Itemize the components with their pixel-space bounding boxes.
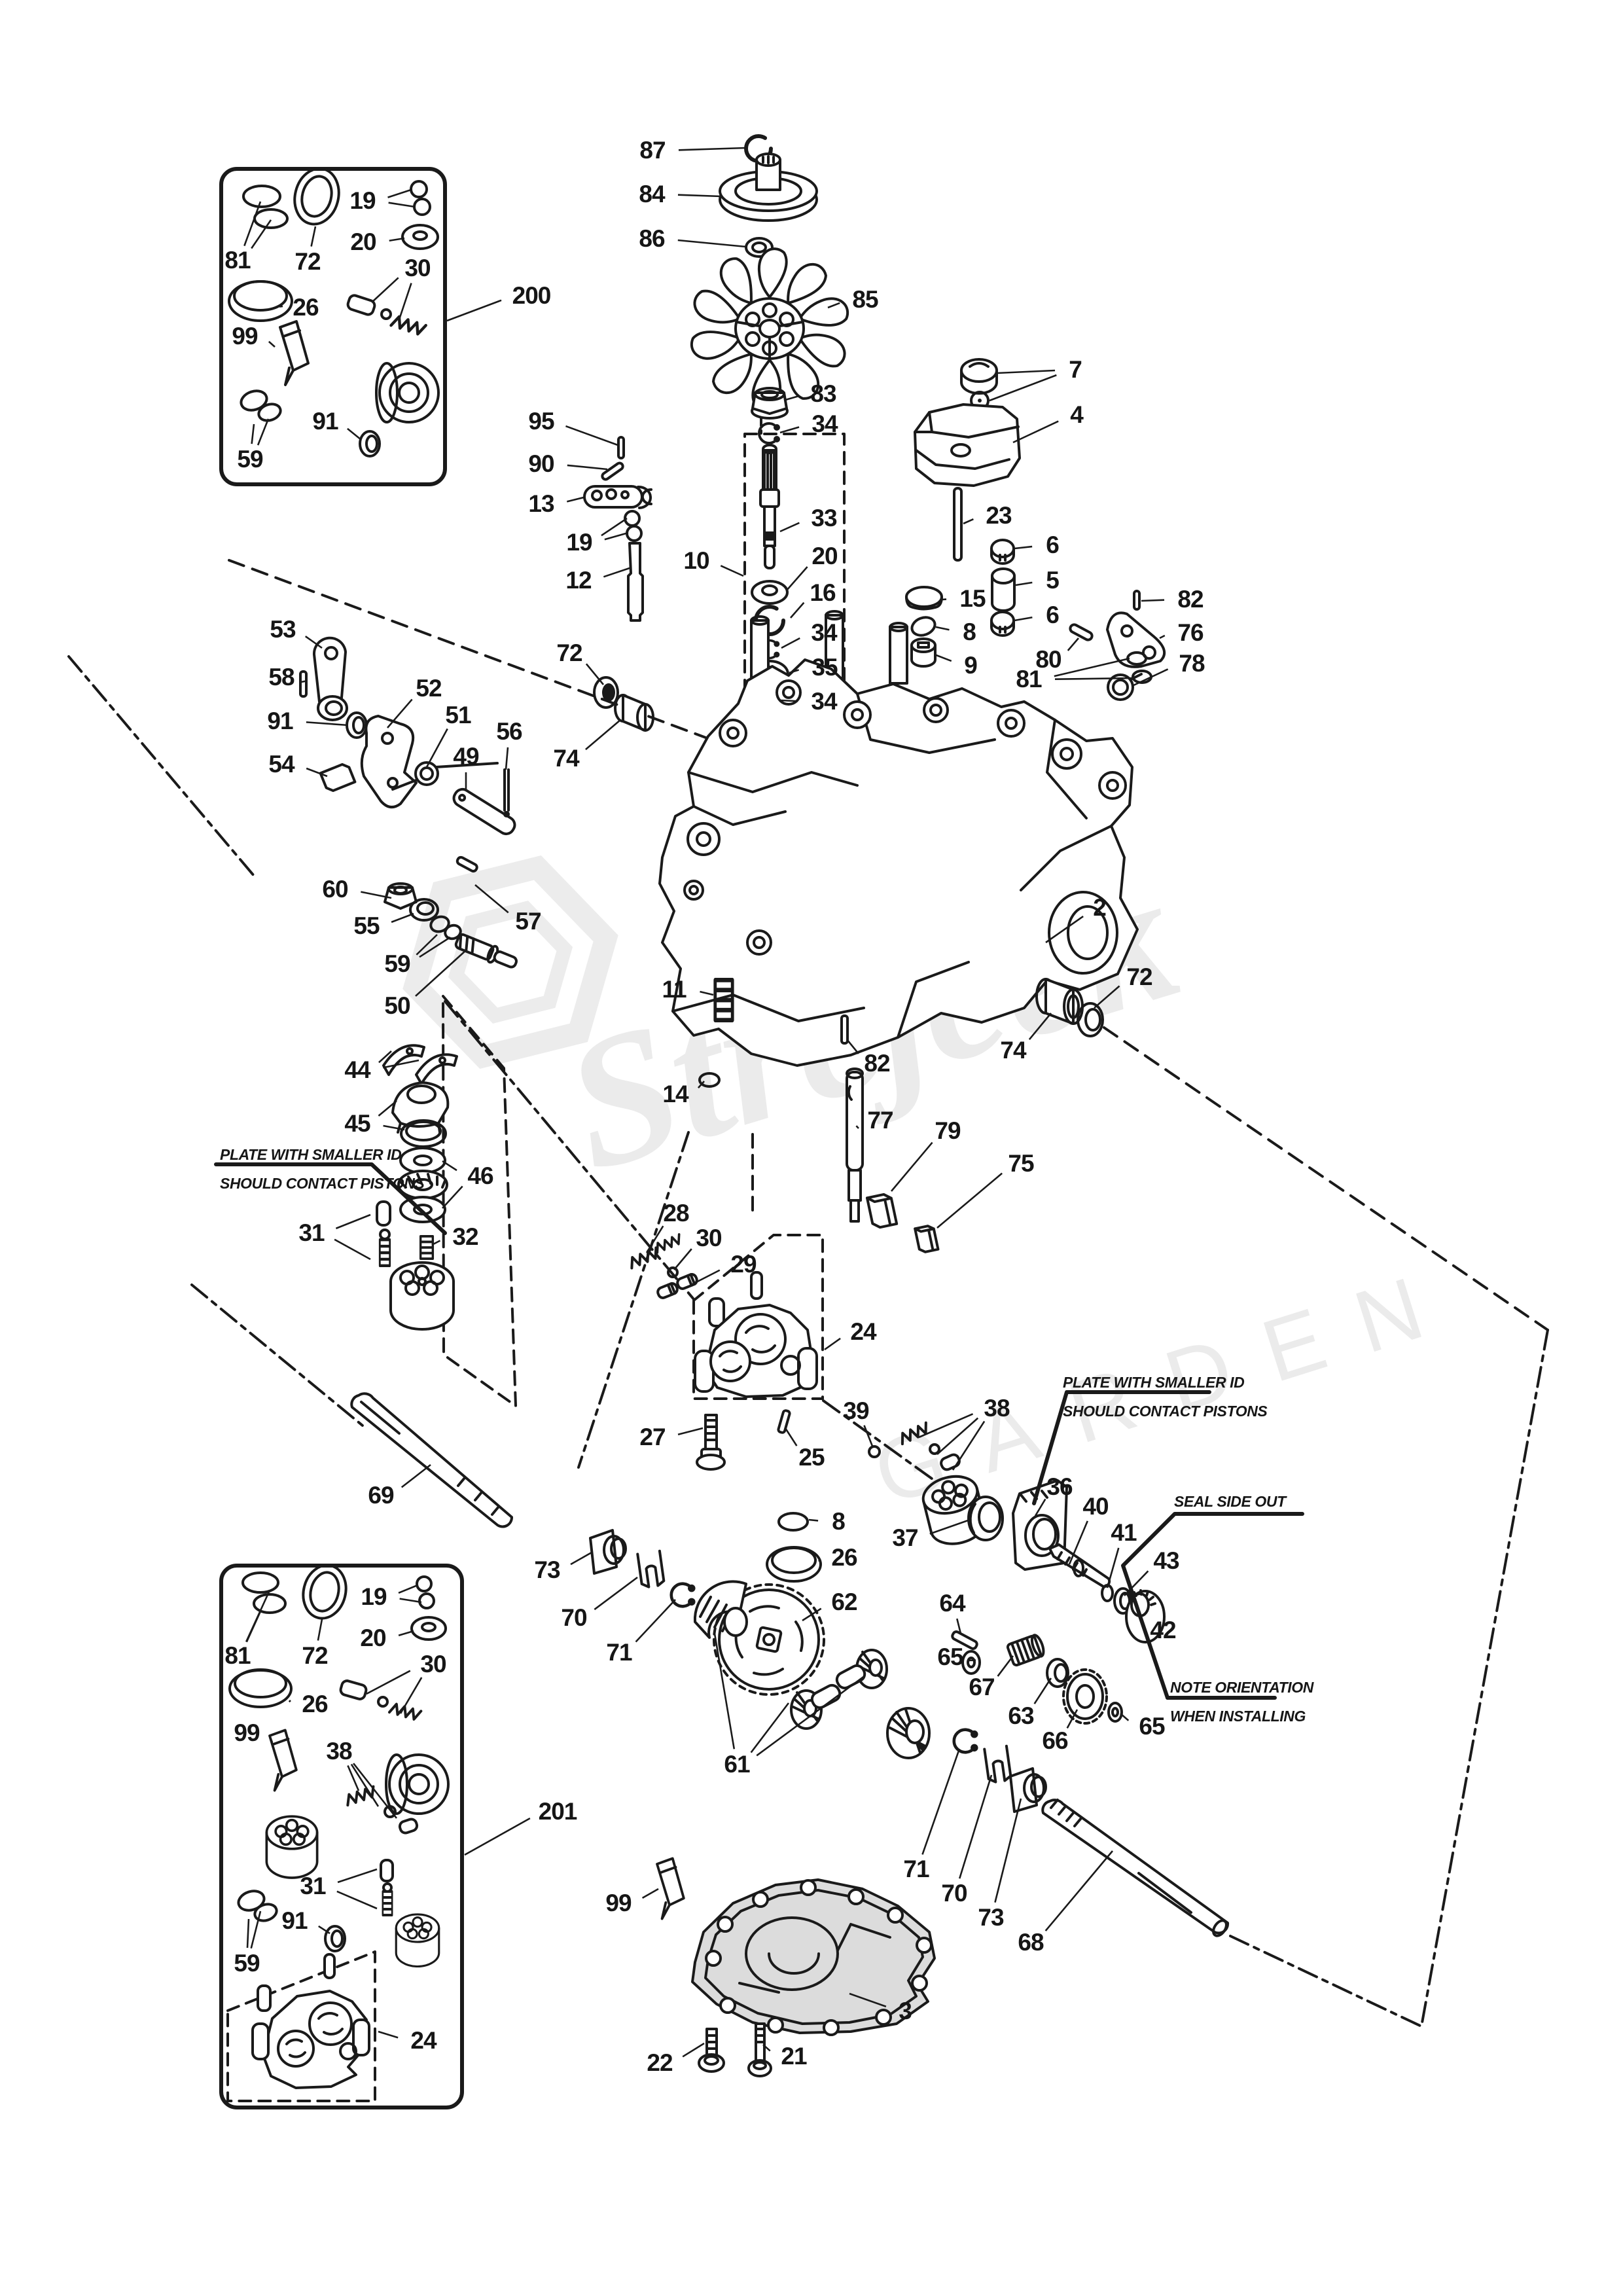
part-label-59: 59 <box>384 950 410 978</box>
part-label-83: 83 <box>810 380 836 408</box>
differential-group <box>351 1393 1229 1938</box>
part-label-20: 20 <box>360 1624 385 1652</box>
kit-center-section-icon <box>253 1954 369 2088</box>
part-label-73: 73 <box>978 1904 1003 1931</box>
part-label-19: 19 <box>349 187 375 215</box>
clamp-6-upper-icon <box>991 540 1014 564</box>
shaft-33-icon <box>760 445 779 568</box>
magnet-75-icon <box>915 1225 938 1253</box>
part-label-4: 4 <box>1070 401 1083 429</box>
pin-25-icon <box>778 1410 791 1433</box>
part-label-36: 36 <box>1046 1473 1072 1501</box>
part-label-68: 68 <box>1018 1929 1043 1956</box>
flange-73-icon <box>590 1530 626 1573</box>
seal-note: SEAL SIDE OUT <box>1174 1487 1286 1516</box>
part-label-21: 21 <box>781 2043 806 2070</box>
part-label-27: 27 <box>639 1424 665 1451</box>
part-label-62: 62 <box>831 1588 857 1616</box>
nut-83-icon <box>752 388 787 418</box>
bracket-52-icon <box>362 716 416 807</box>
exploded-parts-diagram: Strejcek GARDEN <box>0 0 1623 2296</box>
part-label-75: 75 <box>1008 1150 1033 1177</box>
part-label-55: 55 <box>353 912 379 940</box>
part-label-43: 43 <box>1153 1547 1179 1575</box>
part-label-19: 19 <box>361 1583 386 1611</box>
gear-66-icon <box>1063 1670 1107 1723</box>
part-label-14: 14 <box>662 1081 688 1108</box>
part-label-99: 99 <box>234 1719 259 1747</box>
spring-32-icon <box>421 1236 433 1259</box>
block-54-icon <box>321 762 355 793</box>
center-section-24-icon <box>628 1234 817 1397</box>
part-label-11: 11 <box>662 976 686 1003</box>
pin-56-icon <box>505 770 508 810</box>
part-label-26: 26 <box>293 294 318 321</box>
part-label-60: 60 <box>322 876 348 903</box>
part-label-37: 37 <box>892 1524 918 1552</box>
part-label-29: 29 <box>730 1251 756 1278</box>
pin-82-icon <box>1134 591 1139 609</box>
part-label-84: 84 <box>639 181 664 208</box>
part-label-2: 2 <box>1093 894 1106 922</box>
part-label-87: 87 <box>639 137 665 164</box>
part-label-33: 33 <box>811 505 836 532</box>
bolt-27-icon <box>697 1415 724 1469</box>
cylinder-block-icon <box>391 1263 454 1329</box>
part-label-74: 74 <box>1000 1037 1026 1064</box>
part-label-63: 63 <box>1008 1702 1033 1730</box>
washer-65-icon <box>963 1651 980 1674</box>
part-label-20: 20 <box>811 543 837 570</box>
part-label-6: 6 <box>1046 601 1059 629</box>
part-label-38: 38 <box>984 1395 1009 1422</box>
plug-15-icon <box>906 587 942 609</box>
part-label-65: 65 <box>1139 1713 1164 1740</box>
part-label-26: 26 <box>302 1691 327 1718</box>
part-label-59: 59 <box>237 446 262 473</box>
part-label-38: 38 <box>326 1738 351 1765</box>
lever-76-icon <box>1069 591 1164 700</box>
pulley-84-icon <box>720 154 817 221</box>
part-label-73: 73 <box>534 1556 560 1584</box>
part-label-8: 8 <box>963 619 976 646</box>
part-label-82: 82 <box>864 1050 889 1077</box>
part-label-99: 99 <box>605 1890 631 1917</box>
pin-95-icon <box>618 437 624 458</box>
part-label-35: 35 <box>811 654 837 681</box>
part-label-58: 58 <box>268 664 294 691</box>
plate-note-left: PLATE WITH SMALLER IDSHOULD CONTACT PIST… <box>220 1140 424 1198</box>
part-label-9: 9 <box>964 652 977 679</box>
bushing-5-icon <box>992 569 1014 611</box>
part-label-41: 41 <box>1111 1519 1136 1547</box>
part-label-61: 61 <box>724 1751 749 1778</box>
part-label-67: 67 <box>969 1674 994 1701</box>
bushing-63-icon <box>1047 1659 1068 1687</box>
part-label-50: 50 <box>384 992 410 1020</box>
pin-90-icon <box>601 462 624 481</box>
fork-70-icon <box>637 1551 664 1588</box>
part-label-32: 32 <box>452 1223 478 1251</box>
part-label-52: 52 <box>416 675 441 702</box>
part-label-46: 46 <box>467 1162 493 1190</box>
disc-8-icon <box>910 615 938 639</box>
bevel-gear-icon <box>887 1708 929 1758</box>
part-label-81: 81 <box>224 1642 250 1670</box>
oring-14-icon <box>700 1073 719 1086</box>
part-label-90: 90 <box>528 450 554 478</box>
flange-73b-icon <box>1010 1768 1046 1812</box>
shaft-12-icon <box>628 543 643 620</box>
part-label-10: 10 <box>683 547 709 575</box>
part-label-5: 5 <box>1046 567 1059 594</box>
part-label-76: 76 <box>1177 619 1203 647</box>
part-label-77: 77 <box>867 1107 893 1134</box>
part-label-95: 95 <box>528 408 554 435</box>
coupler-67-icon <box>1007 1634 1046 1666</box>
part-label-201: 201 <box>539 1798 577 1825</box>
ring-26-icon <box>767 1547 821 1581</box>
part-label-42: 42 <box>1150 1617 1175 1644</box>
part-label-23: 23 <box>986 502 1011 529</box>
part-label-24: 24 <box>410 2027 436 2054</box>
pin-80-icon <box>1069 623 1093 641</box>
oring-39-icon <box>869 1446 880 1457</box>
part-label-30: 30 <box>420 1651 446 1678</box>
part-label-28: 28 <box>663 1200 688 1227</box>
rotor-37-icon <box>969 1497 1003 1540</box>
part-label-31: 31 <box>298 1219 324 1247</box>
part-label-91: 91 <box>312 408 338 435</box>
orientation-note: NOTE ORIENTATIONWHEN INSTALLING <box>1170 1673 1313 1731</box>
clamp-6-lower-icon <box>991 612 1014 636</box>
lever-13-icon <box>584 486 651 508</box>
part-label-12: 12 <box>565 567 591 594</box>
part-label-57: 57 <box>515 908 541 935</box>
part-label-44: 44 <box>344 1056 370 1084</box>
part-label-74: 74 <box>553 745 579 772</box>
part-label-200: 200 <box>512 282 551 310</box>
part-label-20: 20 <box>350 228 376 256</box>
part-label-53: 53 <box>270 616 295 643</box>
plug-8-icon <box>779 1513 808 1530</box>
part-label-69: 69 <box>368 1482 393 1509</box>
part-label-99: 99 <box>232 323 257 350</box>
part-label-25: 25 <box>798 1444 824 1471</box>
slotted-9-icon <box>912 639 935 666</box>
tank-4-icon <box>915 404 1020 486</box>
part-label-66: 66 <box>1042 1727 1067 1755</box>
part-label-70: 70 <box>561 1604 586 1632</box>
plate-note-right: PLATE WITH SMALLER IDSHOULD CONTACT PIST… <box>1063 1368 1267 1426</box>
part-label-22: 22 <box>647 2049 672 2077</box>
part-label-54: 54 <box>268 751 294 778</box>
part-label-24: 24 <box>850 1318 876 1346</box>
part-label-85: 85 <box>852 286 878 314</box>
pin-58-icon <box>300 672 306 696</box>
part-label-72: 72 <box>294 248 320 276</box>
part-label-15: 15 <box>959 585 985 613</box>
pin-57-icon <box>456 856 478 872</box>
sealant-99-icon <box>657 1858 684 1918</box>
axle-68-icon <box>1043 1800 1229 1938</box>
part-label-19: 19 <box>566 529 592 556</box>
part-label-7: 7 <box>1069 356 1082 384</box>
phantom-lines <box>69 418 1548 2026</box>
fork-70b-icon <box>984 1746 1011 1783</box>
part-label-91: 91 <box>281 1907 307 1935</box>
part-label-56: 56 <box>496 718 522 745</box>
part-label-39: 39 <box>843 1397 868 1425</box>
part-label-51: 51 <box>445 702 471 729</box>
part-label-72: 72 <box>1126 963 1152 991</box>
part-label-72: 72 <box>556 639 582 667</box>
part-label-34: 34 <box>811 410 837 438</box>
part-label-13: 13 <box>528 490 554 518</box>
oring-icon <box>243 186 280 207</box>
part-label-8: 8 <box>832 1508 845 1535</box>
brake-shaft-77-icon <box>847 1069 863 1221</box>
part-label-45: 45 <box>344 1110 370 1138</box>
magnet-79-icon <box>867 1193 897 1229</box>
piston-31-icon <box>377 1202 390 1225</box>
motor-shaft-40-icon <box>1050 1545 1109 1587</box>
part-label-3: 3 <box>899 1998 912 2025</box>
part-label-86: 86 <box>639 225 664 253</box>
part-label-40: 40 <box>1082 1493 1108 1520</box>
part-label-71: 71 <box>606 1639 632 1666</box>
part-label-26: 26 <box>831 1544 857 1571</box>
part-label-6: 6 <box>1046 531 1059 559</box>
part-label-16: 16 <box>810 579 835 607</box>
bolt-22-icon <box>699 2029 724 2072</box>
kit-201-parts <box>230 1560 448 2088</box>
part-label-71: 71 <box>903 1856 929 1883</box>
part-label-91: 91 <box>267 708 293 735</box>
rod-23-icon <box>954 488 961 560</box>
part-label-34: 34 <box>811 619 836 647</box>
part-label-31: 31 <box>300 1873 325 1900</box>
part-label-72: 72 <box>302 1642 327 1670</box>
part-label-81: 81 <box>1016 666 1041 693</box>
part-label-78: 78 <box>1179 650 1204 677</box>
part-label-59: 59 <box>234 1950 259 1977</box>
part-label-49: 49 <box>453 743 478 770</box>
bushing-74-icon <box>615 695 653 730</box>
part-label-30: 30 <box>404 255 430 282</box>
part-label-81: 81 <box>224 247 250 274</box>
part-label-65: 65 <box>937 1643 963 1671</box>
part-label-70: 70 <box>941 1880 967 1907</box>
part-label-64: 64 <box>939 1590 965 1617</box>
part-label-79: 79 <box>935 1117 960 1145</box>
part-label-30: 30 <box>696 1225 721 1252</box>
part-label-82: 82 <box>1177 586 1203 613</box>
bolt-21-icon <box>749 2024 771 2076</box>
part-label-34: 34 <box>811 688 836 715</box>
